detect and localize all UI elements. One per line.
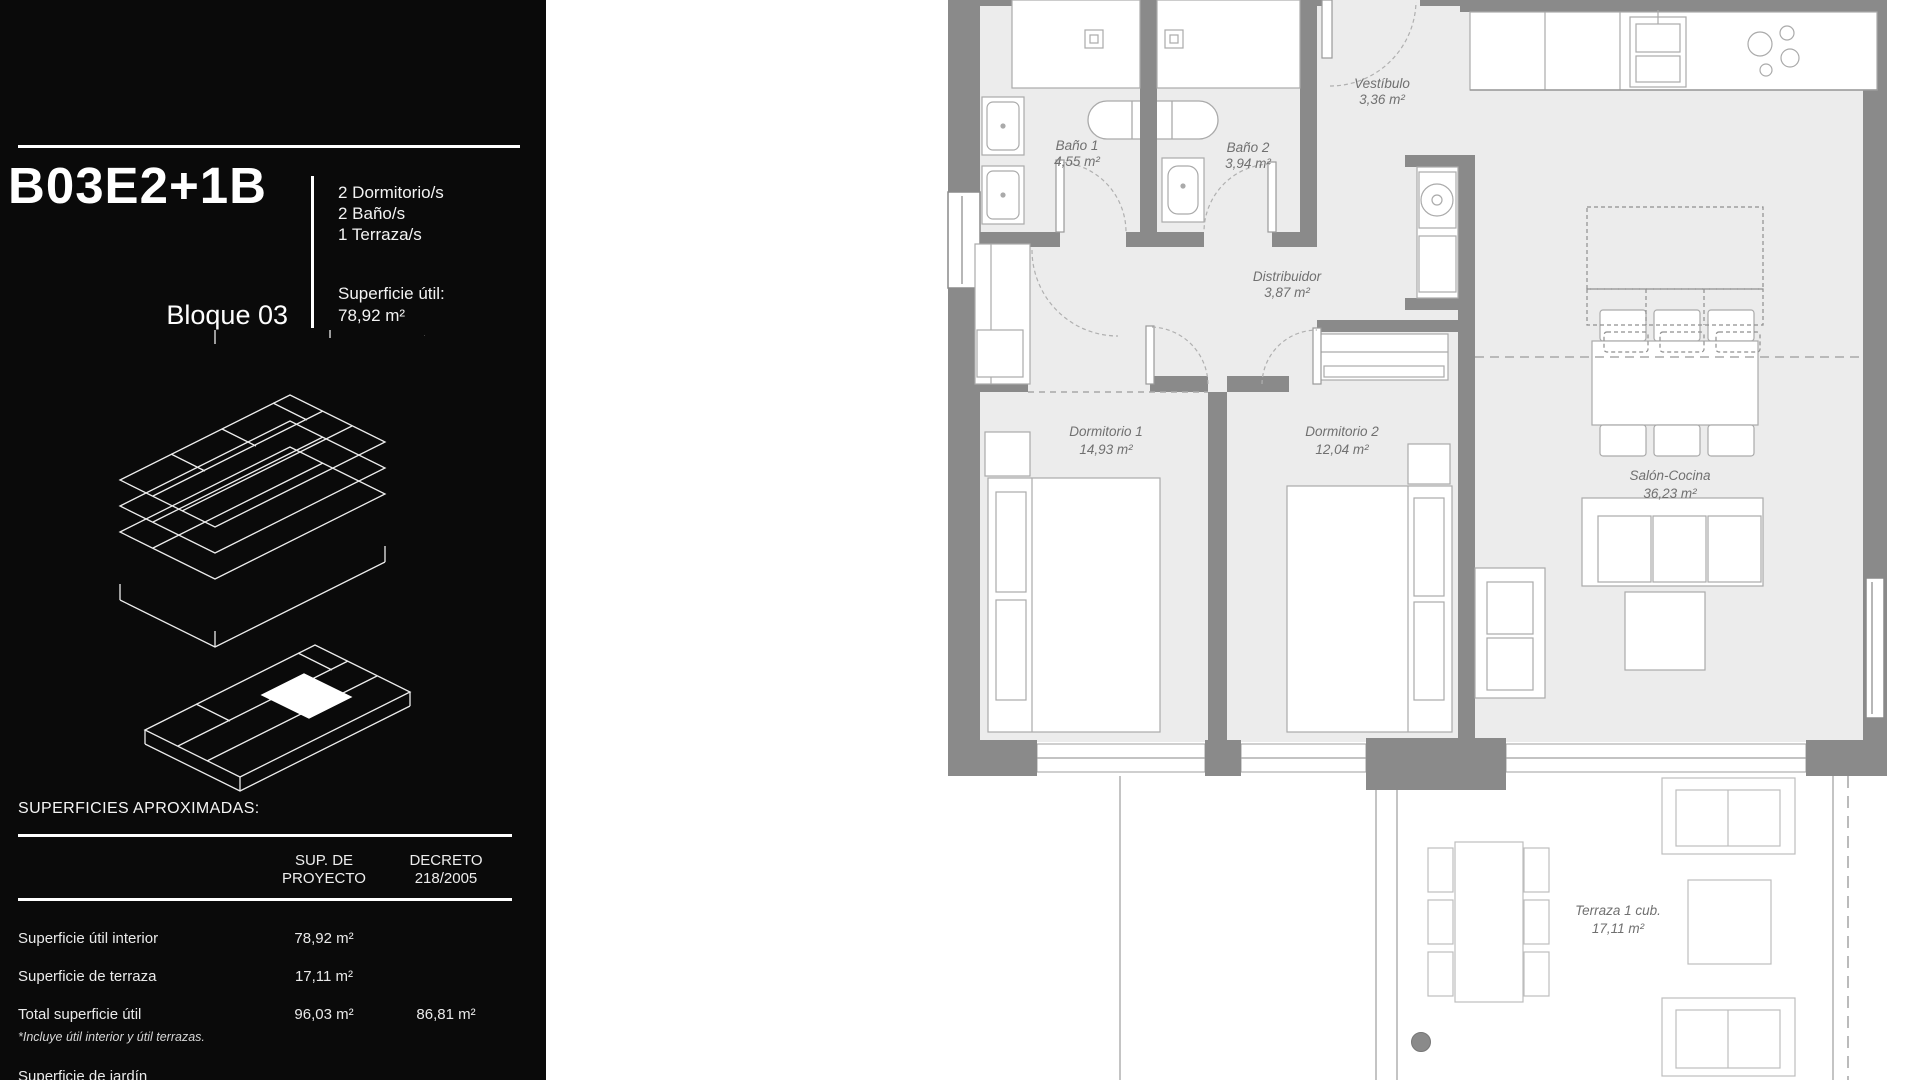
info-sidebar: B03E2+1B 2 Dormitorio/s 2 Baño/s 1 Terra… (0, 0, 546, 1080)
label-dormitorio1-area: 14,93 m² (1079, 442, 1133, 457)
terrace-dining (1428, 842, 1549, 1002)
upper-floor-plates (120, 395, 385, 647)
table-rule-mid (18, 898, 512, 901)
label-bano2-area: 3,94 m² (1225, 156, 1271, 171)
building-axonometric (85, 330, 425, 800)
coffee-table (1625, 592, 1705, 670)
label-distribuidor-name: Distribuidor (1253, 269, 1322, 284)
bedroom2-closet (1320, 334, 1448, 380)
col-proyecto: SUP. DE PROYECTO (268, 852, 380, 888)
terrace (1120, 776, 1848, 1080)
label-distribuidor-area: 3,87 m² (1264, 285, 1310, 300)
label-dormitorio2-name: Dormitorio 2 (1305, 424, 1379, 439)
watermark: m (807, 475, 949, 654)
label-bano2-name: Baño 2 (1227, 140, 1270, 155)
table-header: SUP. DE PROYECTO DECRETO 218/2005 (18, 852, 512, 888)
col-decreto: DECRETO 218/2005 (380, 852, 512, 888)
table-row: Total superficie útil 96,03 m² 86,81 m² (18, 1006, 512, 1023)
bed-dormitorio2 (1287, 444, 1452, 732)
loveseat (1475, 568, 1545, 698)
hall-wardrobe (975, 244, 1030, 384)
table-rule-top (18, 834, 512, 837)
feature-bedrooms: 2 Dormitorio/s (338, 182, 444, 203)
terrace-plant (1412, 1033, 1431, 1052)
table-row: Superficie de jardín (18, 1068, 512, 1080)
label-bano1-name: Baño 1 (1056, 138, 1099, 153)
utility-niche (1417, 167, 1458, 298)
table-row: Superficie de terraza 17,11 m² (18, 968, 512, 985)
highlighted-unit (262, 674, 351, 718)
terrace-lounge (1662, 778, 1795, 1076)
label-vestibulo-name: Vestíbulo (1354, 76, 1410, 91)
label-salon-area: 36,23 m² (1643, 486, 1697, 501)
block-label: Bloque 03 (148, 300, 288, 331)
label-vestibulo-area: 3,36 m² (1359, 92, 1405, 107)
label-terraza-area: 17,11 m² (1592, 921, 1645, 936)
surface-label: Superficie útil: (338, 283, 445, 305)
useful-surface: Superficie útil: 78,92 m² (338, 283, 445, 327)
label-terraza-name: Terraza 1 cub. (1575, 903, 1661, 918)
key-plate (145, 645, 410, 791)
feature-bathrooms: 2 Baño/s (338, 203, 444, 224)
vertical-divider (311, 176, 314, 328)
label-dormitorio1-name: Dormitorio 1 (1069, 424, 1143, 439)
label-dormitorio2-area: 12,04 m² (1315, 442, 1369, 457)
table-row: Superficie útil interior 78,92 m² (18, 930, 512, 947)
kitchen-sink (1630, 10, 1686, 87)
sofa (1582, 498, 1763, 586)
unit-code: B03E2+1B (8, 156, 267, 215)
label-salon-name: Salón-Cocina (1629, 468, 1711, 483)
feature-terraces: 1 Terraza/s (338, 224, 444, 245)
label-bano1-area: 4,55 m² (1054, 154, 1100, 169)
floorplan-sheet: m (0, 0, 1920, 1080)
surface-value: 78,92 m² (338, 305, 445, 327)
top-rule (18, 145, 520, 148)
unit-features: 2 Dormitorio/s 2 Baño/s 1 Terraza/s (338, 182, 444, 245)
areas-title: SUPERFICIES APROXIMADAS: (18, 800, 260, 818)
kitchen-counter (1470, 10, 1877, 90)
window-right (1866, 578, 1884, 718)
table-footnote: *Incluye útil interior y útil terrazas. (18, 1030, 205, 1044)
